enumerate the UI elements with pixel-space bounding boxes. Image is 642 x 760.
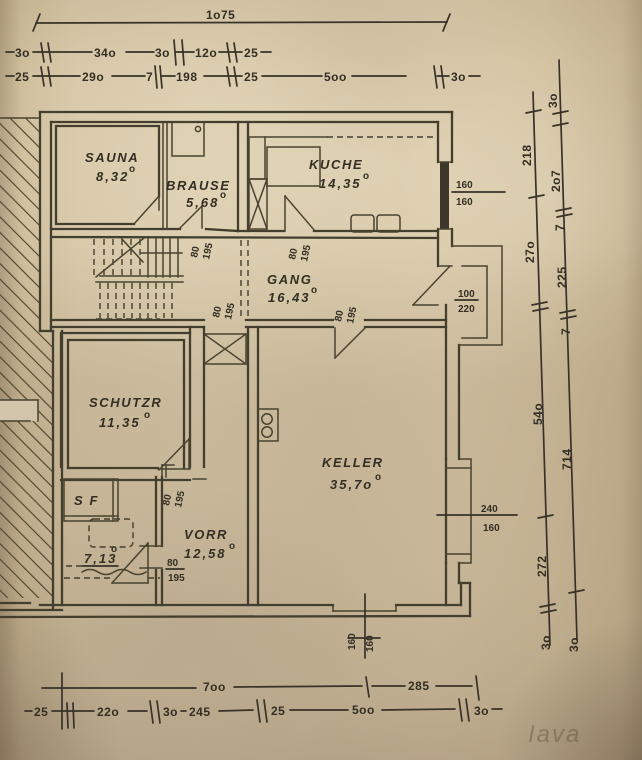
svg-text:o: o xyxy=(111,544,117,555)
svg-text:7: 7 xyxy=(559,328,573,335)
svg-text:o: o xyxy=(220,190,226,201)
svg-text:160: 160 xyxy=(347,633,358,650)
svg-text:218: 218 xyxy=(520,144,534,166)
svg-text:VORR: VORR xyxy=(184,527,228,542)
svg-text:27o: 27o xyxy=(523,241,537,263)
svg-text:160: 160 xyxy=(483,523,500,534)
svg-text:5oo: 5oo xyxy=(352,703,375,717)
svg-text:240: 240 xyxy=(481,504,498,515)
svg-text:22o: 22o xyxy=(97,705,119,719)
svg-text:o: o xyxy=(311,285,317,296)
svg-text:Iava: Iava xyxy=(528,721,581,748)
svg-text:54o: 54o xyxy=(531,403,545,425)
svg-text:25: 25 xyxy=(244,46,258,60)
svg-text:12,58: 12,58 xyxy=(184,546,227,561)
svg-text:7oo: 7oo xyxy=(203,680,226,694)
svg-text:o: o xyxy=(375,472,381,483)
svg-text:272: 272 xyxy=(535,555,549,577)
svg-text:3o: 3o xyxy=(451,70,466,84)
svg-text:35,7o: 35,7o xyxy=(330,477,373,492)
svg-text:1o75: 1o75 xyxy=(206,8,235,22)
svg-text:3o: 3o xyxy=(567,637,581,652)
svg-text:3o: 3o xyxy=(539,635,553,650)
svg-text:3o: 3o xyxy=(546,93,560,108)
svg-text:7: 7 xyxy=(146,70,153,84)
svg-text:o: o xyxy=(129,164,135,175)
svg-text:160: 160 xyxy=(456,180,473,191)
svg-text:3o: 3o xyxy=(163,705,178,719)
svg-text:8,32: 8,32 xyxy=(96,169,129,184)
svg-text:34o: 34o xyxy=(94,46,116,60)
svg-text:285: 285 xyxy=(408,679,430,693)
svg-text:195: 195 xyxy=(299,244,313,263)
svg-text:5oo: 5oo xyxy=(324,70,347,84)
svg-text:16,43: 16,43 xyxy=(268,290,311,305)
svg-text:GANG: GANG xyxy=(267,272,312,287)
svg-text:100: 100 xyxy=(458,289,475,300)
svg-text:25: 25 xyxy=(244,70,258,84)
svg-text:3o: 3o xyxy=(474,704,489,718)
svg-text:o: o xyxy=(229,541,235,552)
svg-text:80: 80 xyxy=(287,247,300,261)
svg-text:KUCHE: KUCHE xyxy=(309,157,363,172)
svg-text:2o7: 2o7 xyxy=(549,170,563,192)
svg-text:SCHUTZR: SCHUTZR xyxy=(89,395,162,410)
svg-text:160: 160 xyxy=(456,197,473,208)
svg-text:S F: S F xyxy=(74,493,99,508)
svg-text:11,35: 11,35 xyxy=(99,415,141,430)
svg-text:80: 80 xyxy=(167,558,179,569)
svg-text:80: 80 xyxy=(333,309,346,323)
svg-text:195: 195 xyxy=(223,302,237,321)
svg-text:25: 25 xyxy=(15,70,29,84)
svg-text:225: 225 xyxy=(555,266,569,288)
svg-text:245: 245 xyxy=(189,705,211,719)
svg-text:80: 80 xyxy=(189,245,202,259)
svg-text:SAUNA: SAUNA xyxy=(85,150,139,165)
svg-text:80: 80 xyxy=(211,305,224,319)
svg-text:3o: 3o xyxy=(15,46,30,60)
svg-text:198: 198 xyxy=(176,70,198,84)
svg-text:o: o xyxy=(144,410,150,421)
svg-text:25: 25 xyxy=(34,705,48,719)
svg-text:195: 195 xyxy=(168,573,185,584)
svg-text:5,68: 5,68 xyxy=(186,195,219,210)
svg-text:220: 220 xyxy=(458,304,475,315)
svg-text:12o: 12o xyxy=(195,46,217,60)
svg-text:195: 195 xyxy=(201,242,215,261)
svg-text:195: 195 xyxy=(173,490,187,509)
svg-text:7: 7 xyxy=(553,224,567,231)
svg-text:3o: 3o xyxy=(155,46,170,60)
svg-text:KELLER: KELLER xyxy=(322,455,384,470)
svg-text:29o: 29o xyxy=(82,70,104,84)
svg-text:714: 714 xyxy=(560,448,574,470)
svg-text:25: 25 xyxy=(271,704,285,718)
svg-text:195: 195 xyxy=(345,306,359,325)
svg-text:o: o xyxy=(363,171,369,182)
svg-text:14,35: 14,35 xyxy=(319,176,362,191)
